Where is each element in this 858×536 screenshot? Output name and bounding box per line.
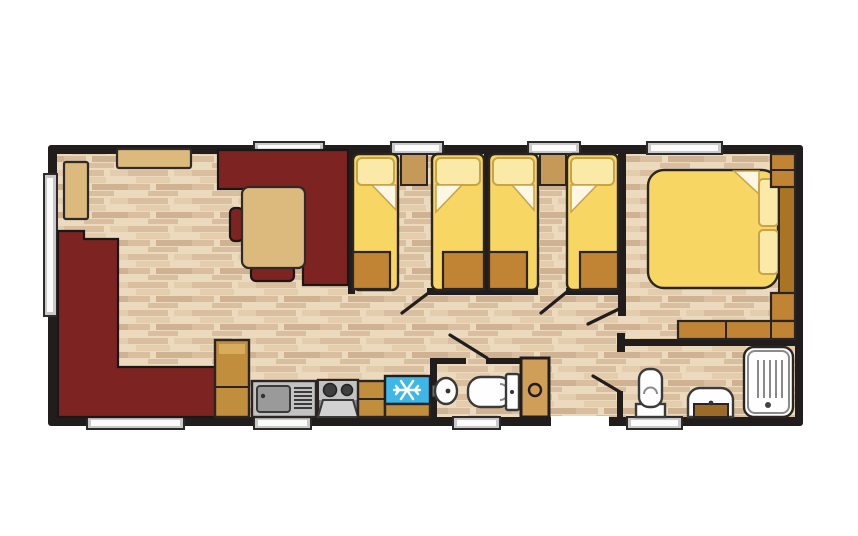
window-top-4 — [647, 142, 722, 154]
vanity-front — [694, 404, 728, 417]
foot-storage — [353, 252, 390, 289]
top-shelf — [117, 149, 191, 168]
pillow — [357, 158, 394, 185]
hob-burner-icon — [342, 385, 353, 396]
cupboard-door — [521, 358, 549, 417]
dining-table — [242, 187, 305, 268]
sink-unit — [252, 381, 316, 417]
window-left — [44, 174, 57, 316]
tap-icon — [261, 394, 265, 398]
pillow — [493, 158, 534, 185]
window-top-3 — [528, 142, 580, 154]
wall-wc-top-left — [430, 358, 466, 364]
fridge-freezer — [385, 376, 430, 404]
floorplan-canvas — [0, 0, 858, 536]
foot-storage — [580, 252, 618, 289]
pillow — [571, 158, 614, 185]
foot-storage — [489, 252, 527, 289]
drain-icon — [765, 402, 771, 408]
wall-shelf — [64, 162, 88, 219]
bedside-cabinet — [771, 293, 795, 321]
cooker — [318, 380, 358, 417]
window-bottom-4 — [627, 417, 682, 429]
window-bottom-3 — [453, 417, 500, 429]
vanity-tap-icon — [709, 401, 714, 406]
sink-bowl — [257, 386, 290, 412]
wall-showerroom-stub — [617, 391, 623, 417]
window-bottom-2 — [254, 417, 311, 429]
drawer-unit — [678, 321, 795, 339]
wall-wc-top-right — [486, 358, 521, 364]
floorplan-page — [0, 0, 858, 536]
pillow — [436, 158, 480, 185]
under-fridge-cabinet — [385, 404, 430, 417]
shower-tray — [744, 347, 793, 417]
foot-storage — [443, 252, 484, 289]
basin-drain-icon — [446, 389, 451, 394]
bedside-cabinet — [401, 154, 427, 185]
hob-burner-icon — [324, 384, 337, 397]
bedside-cabinet — [540, 154, 566, 185]
tall-cabinet-top-panel — [219, 344, 245, 354]
window-bottom-1 — [87, 417, 184, 429]
pillow — [759, 230, 778, 274]
flush-icon — [510, 390, 514, 394]
entrance-door-opening — [551, 416, 609, 428]
oven-door — [318, 400, 358, 417]
window-top-2 — [391, 142, 443, 154]
